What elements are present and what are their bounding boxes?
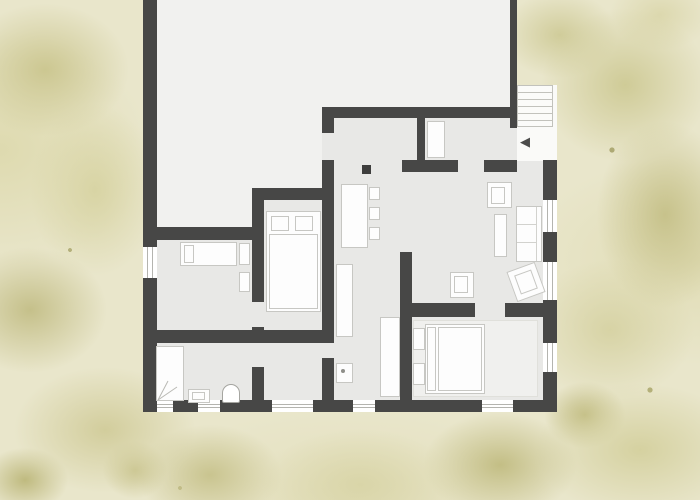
wall-segment (252, 367, 264, 400)
window (543, 262, 557, 300)
wall-segment (375, 400, 482, 412)
column (362, 165, 371, 174)
dining-chair (369, 207, 380, 220)
wall-segment (543, 372, 557, 412)
entry-closet (427, 121, 445, 158)
pillow (295, 216, 313, 231)
armchair-seat (454, 276, 468, 293)
sofa-back-line (536, 207, 537, 261)
wall-segment (484, 160, 517, 172)
window (272, 400, 313, 412)
armchair-seat (491, 187, 505, 204)
wall-segment (143, 330, 334, 343)
floor-big-room (157, 0, 510, 107)
entrance-arrow-icon: ◀ (520, 136, 530, 149)
window (143, 247, 157, 278)
floor-big-room-lower (157, 107, 322, 188)
pillow (184, 245, 194, 263)
window (543, 343, 557, 372)
shower (156, 346, 184, 401)
kitchen-counter (380, 317, 400, 397)
shower-drain-lines (157, 347, 185, 402)
sofa (516, 206, 542, 262)
wall-segment (252, 188, 334, 200)
window (353, 400, 375, 412)
pillow-band (427, 327, 436, 391)
wall-segment (143, 0, 157, 247)
mattress (269, 234, 318, 309)
pillow (271, 216, 289, 231)
dining-chair (369, 227, 380, 240)
wall-segment (543, 160, 557, 200)
side-table (239, 272, 250, 292)
wall-segment (252, 200, 264, 302)
wall-segment (322, 118, 334, 133)
nightstand (413, 363, 425, 385)
wall-segment (322, 358, 334, 403)
stair-side-strip (553, 85, 557, 127)
side-table (239, 243, 250, 265)
wall-segment (400, 252, 412, 403)
window (543, 200, 557, 232)
wall-segment (143, 227, 264, 240)
floor-plan-canvas: ◀ (0, 0, 700, 500)
wall-segment (143, 278, 157, 412)
bathroom-sink-basin (192, 392, 205, 400)
exterior-stairs (517, 85, 553, 127)
floor-big-room-lower-left (157, 188, 252, 227)
coffee-table (494, 214, 507, 257)
window (482, 400, 513, 412)
sink-faucet-dot (341, 369, 345, 373)
sofa-cushion-line (517, 242, 536, 243)
wall-segment (322, 107, 517, 118)
wall-segment (543, 300, 557, 343)
wall-segment (402, 160, 458, 172)
sofa-cushion-line (517, 224, 536, 225)
toilet (222, 384, 240, 403)
sink-unit (336, 363, 353, 383)
mattress (438, 327, 482, 391)
dining-table (341, 184, 368, 248)
wall-segment (543, 232, 557, 262)
tall-cabinet (336, 264, 353, 337)
wall-segment (505, 303, 543, 317)
dining-chair (369, 187, 380, 200)
wall-segment (417, 118, 425, 160)
nightstand (413, 328, 425, 350)
